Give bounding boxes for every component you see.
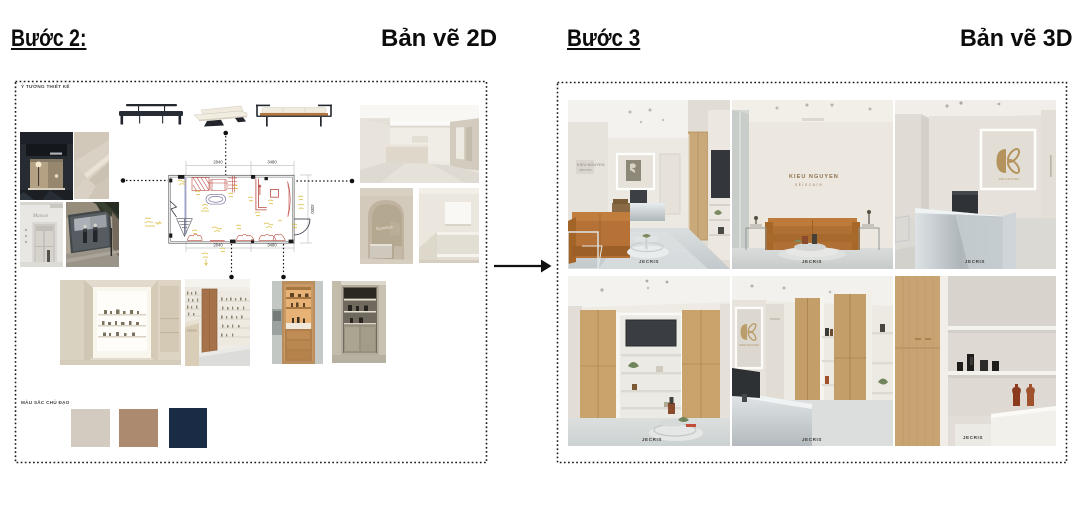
svg-text:JECRIS: JECRIS [965,259,985,264]
svg-text:JECRIS: JECRIS [802,259,822,264]
svg-text:JECRIS: JECRIS [639,259,659,264]
svg-text:JECRIS: JECRIS [802,437,822,442]
svg-text:JECRIS: JECRIS [642,437,662,442]
svg-text:KIEU NGUYEN: KIEU NGUYEN [999,177,1020,181]
svg-text:KIEU NGUYEN: KIEU NGUYEN [739,343,758,347]
svg-text:KIEU NGUYEN: KIEU NGUYEN [577,162,605,167]
svg-text:skincare: skincare [579,168,592,172]
svg-text:KIEU NGUYEN: KIEU NGUYEN [789,174,839,180]
svg-text:JECRIS: JECRIS [963,435,983,440]
svg-text:skincare: skincare [795,182,823,187]
